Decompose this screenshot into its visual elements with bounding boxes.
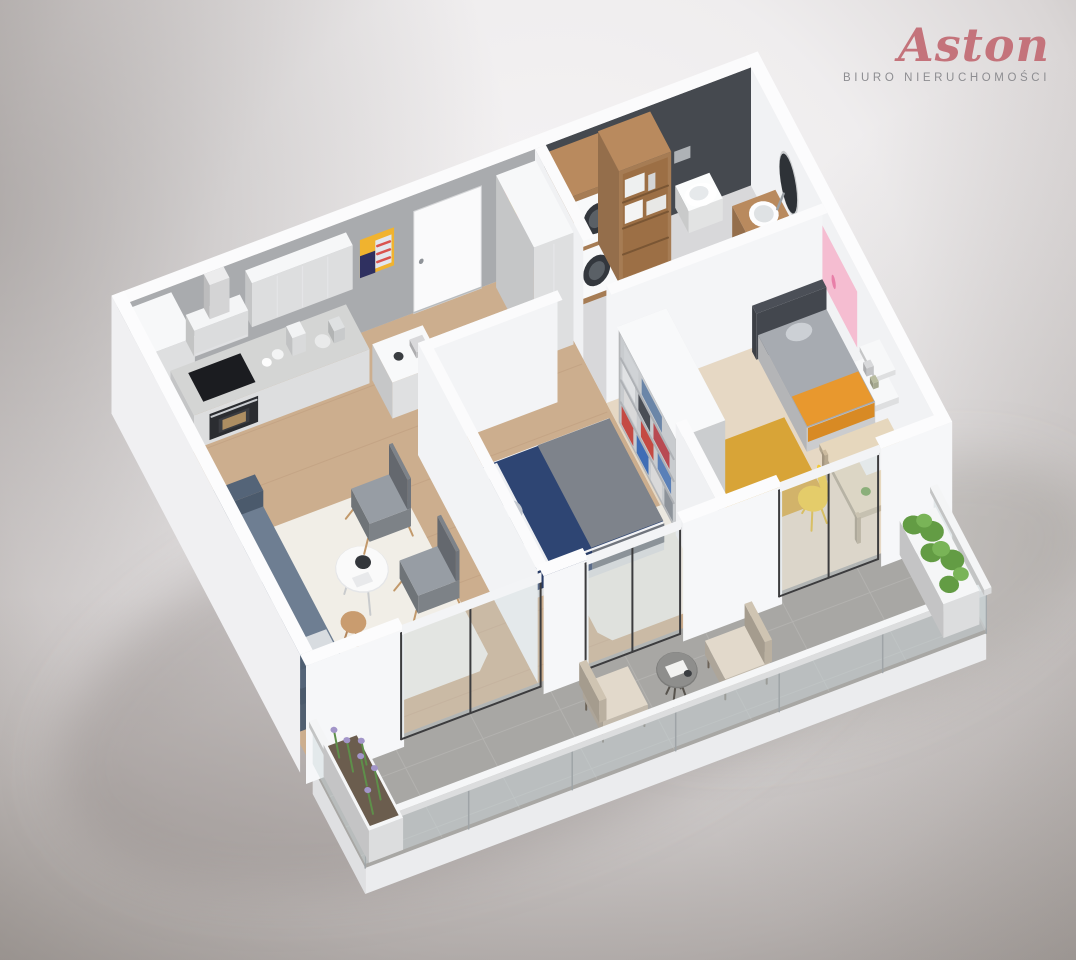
floorplan-3d-render [0, 0, 1076, 960]
shelf-bottles [648, 172, 655, 191]
kids-bed-headboard-left [752, 306, 756, 360]
agency-logo: Aston BIURO NIERUCHOMOŚCI [843, 22, 1050, 84]
agency-logo-name: Aston [843, 22, 1050, 68]
patio-chair-2-back-front [765, 640, 772, 665]
patio-chair-1-back-front [599, 698, 606, 723]
armchair-1-back-front [407, 478, 411, 509]
agency-logo-tagline: BIURO NIERUCHOMOŚCI [843, 72, 1050, 84]
armchair-2-back-front [456, 550, 460, 581]
